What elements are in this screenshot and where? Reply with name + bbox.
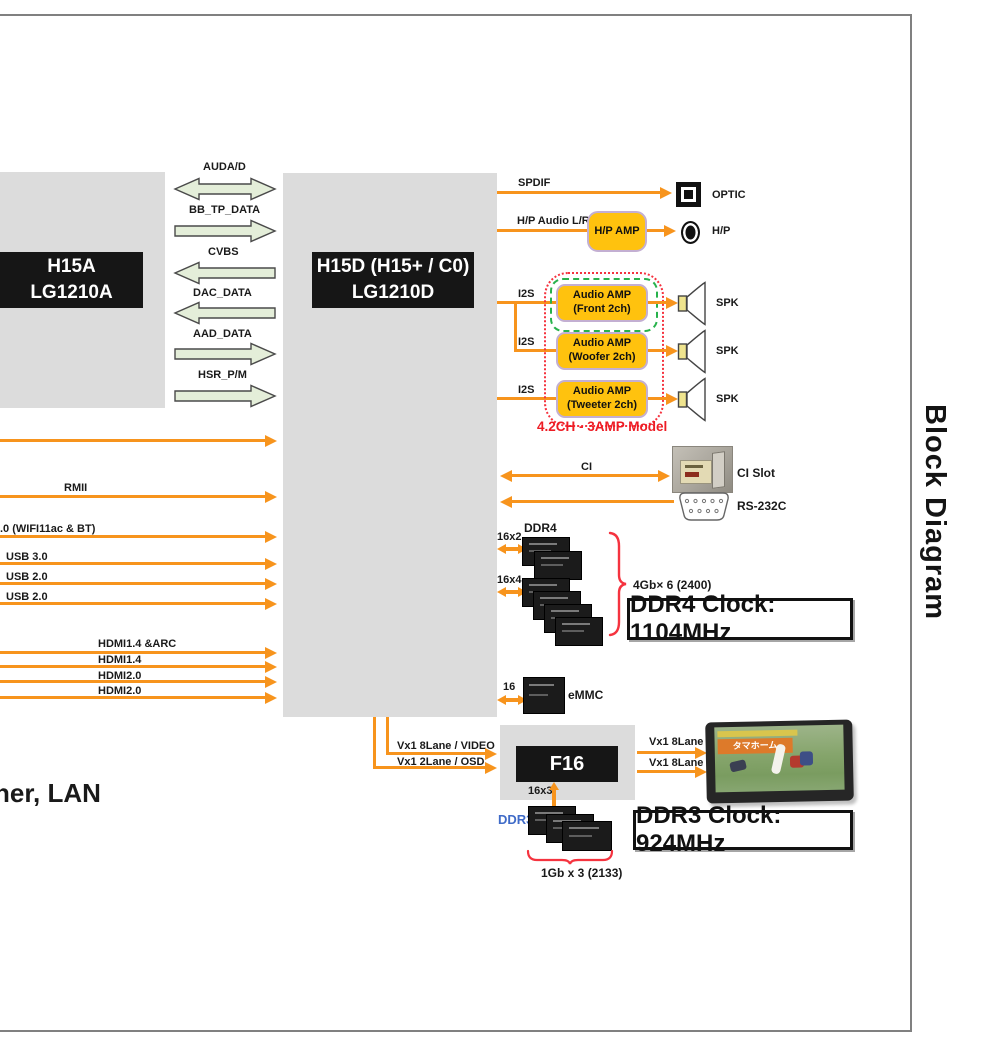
bus-arrow-right-icon	[173, 342, 277, 366]
bus-arrow-left-icon	[173, 261, 277, 285]
f16-mem-arrow	[552, 790, 556, 806]
input-label: RMII	[64, 482, 87, 494]
ddr4-bus2-label: 16x4	[497, 574, 521, 586]
tv-score-strip	[717, 730, 797, 738]
tv-panel-image: タマホーム	[705, 719, 854, 803]
soc-left-chip: H15A LG1210A	[0, 252, 143, 308]
block-diagram-page: Block Diagram ner, LAN H15A LG1210A H15D…	[0, 0, 987, 1049]
bus-label: HSR_P/M	[198, 369, 247, 381]
i2s-label: I2S	[518, 336, 535, 348]
emmc-label: eMMC	[568, 688, 603, 702]
tv-player-dark	[730, 759, 748, 772]
spdif-arrow	[497, 191, 660, 194]
input-arrow	[0, 562, 265, 565]
ci-arrow	[512, 474, 658, 477]
input-arrow	[0, 582, 265, 585]
vx1-video-arrow	[386, 752, 485, 755]
input-arrow	[0, 696, 265, 699]
optic-label: OPTIC	[712, 189, 746, 201]
ddr3-chip	[562, 821, 612, 851]
ddr4-clock-box: DDR4 Clock: 1104MHz	[627, 598, 853, 640]
ddr4-chip	[555, 617, 603, 646]
optical-out-icon	[676, 182, 701, 207]
tv-player-blue	[800, 751, 813, 765]
bus-arrow-both-icon	[173, 177, 277, 201]
amp-line2: (Front 2ch)	[573, 303, 630, 317]
hp-audio-label: H/P Audio L/R	[517, 215, 590, 227]
speaker-icon	[677, 281, 707, 326]
rs232-arrow	[512, 500, 674, 503]
input-label: HDMI1.4 &ARC	[98, 638, 176, 650]
bus-arrow-right-icon	[173, 384, 277, 408]
input-arrow	[0, 665, 265, 668]
bus-label: DAC_DATA	[193, 287, 252, 299]
bus-label: AAD_DATA	[193, 328, 252, 340]
vx1-video-label: Vx1 8Lane / VIDEO	[397, 740, 495, 752]
bus-arrow-left-icon	[173, 301, 277, 325]
amp-model-note: 4.2CH - 3AMP Model	[537, 419, 667, 434]
input-label: .0 (WIFI11ac & BT)	[0, 523, 95, 535]
soc-main-chip: H15D (H15+ / C0) LG1210D	[312, 252, 474, 308]
amp-line2: (Woofer 2ch)	[568, 351, 635, 365]
audio-amp-woofer-box: Audio AMP (Woofer 2ch)	[556, 332, 648, 370]
spk-arrow	[648, 349, 666, 352]
bus-label: CVBS	[208, 246, 239, 258]
side-title: Block Diagram	[918, 404, 951, 620]
amp-line1: Audio AMP	[573, 385, 631, 399]
input-arrow	[0, 680, 265, 683]
ci-slot-opening-icon	[712, 451, 725, 489]
spdif-label: SPDIF	[518, 177, 550, 189]
headphone-jack-icon	[681, 221, 700, 244]
soc-left-name: H15A	[47, 254, 96, 280]
ci-card-icon	[680, 460, 712, 484]
ci-slot-icon	[672, 446, 733, 493]
speaker-icon	[677, 329, 707, 374]
vx1-out1-arrow	[637, 751, 695, 754]
hp-label: H/P	[712, 225, 730, 237]
amp-line2: (Tweeter 2ch)	[567, 399, 637, 413]
ddr3-capacity-label: 1Gb x 3 (2133)	[541, 866, 622, 880]
f16-name: F16	[550, 751, 584, 778]
ddr4-title: DDR4	[524, 521, 557, 535]
speaker-icon	[677, 377, 707, 422]
input-arrow	[0, 439, 265, 442]
hp-arrow	[647, 229, 664, 232]
ddr3-clock-text: DDR3 Clock: 924MHz	[636, 802, 850, 858]
rs232-connector-icon	[676, 491, 732, 522]
ddr4-brace	[608, 531, 628, 637]
tuner-lan-partial-label: ner, LAN	[0, 778, 101, 809]
hp-audio-line	[497, 229, 589, 232]
spk-label: SPK	[716, 345, 739, 357]
f16-chip: F16	[516, 746, 618, 782]
input-arrow	[0, 535, 265, 538]
i2s-branch-line	[514, 301, 517, 352]
amp-line1: Audio AMP	[573, 337, 631, 351]
ddr4-bus1-label: 16x2	[497, 531, 521, 543]
ddr4-chip	[534, 551, 582, 580]
audio-amp-front-box: Audio AMP (Front 2ch)	[556, 284, 648, 322]
ddr4-bus1-arrow	[506, 547, 518, 551]
ddr4-bus2-arrow	[506, 590, 518, 594]
soc-left-part: LG1210A	[30, 280, 112, 306]
audio-amp-tweeter-box: Audio AMP (Tweeter 2ch)	[556, 380, 648, 418]
tv-screen: タマホーム	[714, 725, 844, 793]
ddr4-clock-text: DDR4 Clock: 1104MHz	[630, 591, 850, 647]
soc-main-part: LG1210D	[352, 280, 434, 306]
bus-label: BB_TP_DATA	[189, 204, 260, 216]
input-arrow	[0, 495, 265, 498]
emmc-bus-label: 16	[503, 681, 515, 693]
i2s-label: I2S	[518, 288, 535, 300]
ci-slot-label: CI Slot	[737, 466, 775, 480]
bus-label: AUDA/D	[203, 161, 246, 173]
input-arrow	[0, 602, 265, 605]
ddr3-brace	[526, 849, 614, 864]
vx1-osd-vline	[373, 717, 376, 769]
emmc-chip	[523, 677, 565, 714]
soc-main-name: H15D (H15+ / C0)	[317, 254, 470, 280]
spk-label: SPK	[716, 393, 739, 405]
ddr3-clock-box: DDR3 Clock: 924MHz	[633, 810, 853, 850]
hp-amp-box: H/P AMP	[587, 211, 647, 252]
spk-arrow	[648, 301, 666, 304]
spk-arrow	[648, 397, 666, 400]
emmc-arrow	[506, 698, 518, 702]
vx1-osd-arrow	[373, 766, 485, 769]
spk-label: SPK	[716, 297, 739, 309]
vx1-out2-arrow	[637, 770, 695, 773]
ci-bus-label: CI	[581, 461, 592, 473]
vx1-video-vline	[386, 717, 389, 755]
bus-arrow-right-icon	[173, 219, 277, 243]
hp-amp-label: H/P AMP	[594, 225, 639, 239]
ddr4-capacity-label: 4Gb× 6 (2400)	[633, 578, 711, 592]
rs232-label: RS-232C	[737, 499, 786, 513]
i2s-label: I2S	[518, 384, 535, 396]
amp-line1: Audio AMP	[573, 289, 631, 303]
